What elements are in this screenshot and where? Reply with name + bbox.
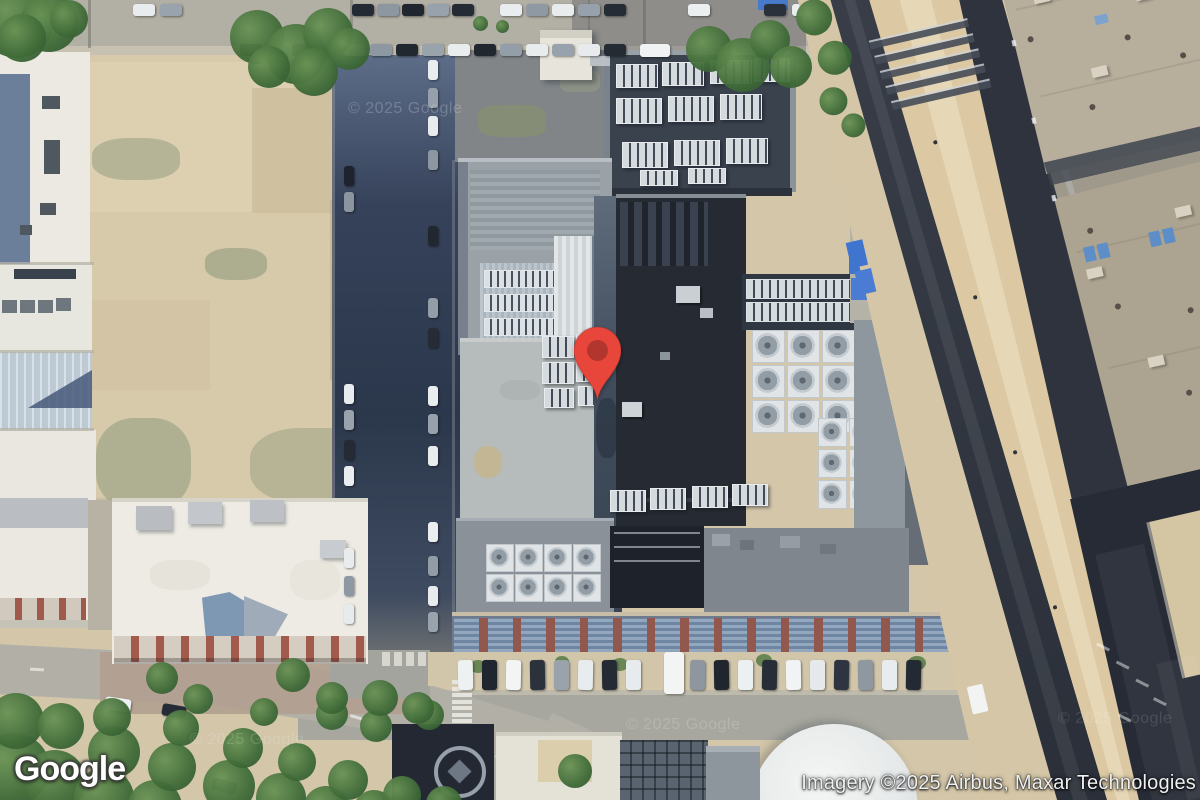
roof-edge [540,30,592,38]
tree [496,20,509,33]
fan-blade [821,421,842,442]
curb [452,160,455,640]
parked-car [482,660,497,690]
tree [163,710,199,746]
rooftop-unit [622,402,642,417]
hvac-unit [542,336,574,358]
vent-grid [484,294,562,312]
crosswalk-stripe [452,713,472,717]
fan-blade [576,547,596,567]
hvac-unit [674,140,720,166]
hvac-unit [610,490,646,512]
parked-car [714,660,730,690]
tree [250,698,278,726]
corrugated-roof [554,236,594,340]
roof-vent [20,225,32,235]
fan-unit [573,544,601,572]
parked-car [552,4,574,16]
roof-vent [38,300,53,313]
fan-unit [486,574,514,602]
fan-unit [787,365,820,398]
pin-ground-shadow [596,398,618,458]
tree [558,754,592,788]
fan-blade [825,368,850,393]
parked-car [428,446,438,466]
tree [0,14,46,62]
vent-grid [484,318,562,336]
roof-shadow [458,162,468,355]
parked-car [664,652,684,694]
moss-patch [478,105,546,137]
parked-car [428,226,438,246]
roof-stain [474,446,502,478]
parked-car [578,44,600,56]
stop-line-dash [406,652,414,666]
pin-body [574,327,621,400]
roof-edge [112,498,368,502]
fan-blade [489,547,509,567]
hvac-unit [622,142,668,168]
parked-car [452,4,474,16]
parked-car [428,612,438,632]
tree [146,662,178,694]
roof-seam [456,518,614,521]
tree [362,680,398,716]
fan-blade [547,577,567,597]
stop-line-dash [418,652,426,666]
weed-patch [205,248,267,280]
parked-car [344,440,354,460]
hvac-unit [640,170,678,186]
parked-car [500,44,522,56]
parapet [458,158,612,162]
fan-blade [790,333,815,358]
rooftop-unit [136,506,172,530]
parked-car [604,4,626,16]
parked-car [786,660,802,690]
fan-blade [576,577,596,597]
parked-car [427,4,449,16]
parked-car [526,4,548,16]
fan-blade [755,403,780,428]
louver-strip [0,598,86,620]
hvac-unit [688,168,726,184]
roof-stain [290,560,340,600]
tree [223,728,263,768]
roof-edge [706,746,760,752]
fan-unit [544,544,572,572]
parked-car [344,466,354,486]
parked-car [428,414,438,434]
parked-car [344,576,354,596]
fan-unit [486,544,514,572]
parked-car [810,660,825,690]
building-roof [704,528,909,620]
lot-patch [90,300,210,390]
stop-line-dash [382,652,390,666]
parked-car [738,660,753,690]
fan-blade [825,333,850,358]
parked-car [428,522,438,542]
parked-car [604,44,626,56]
fan-blade [821,483,842,504]
fan-blade [790,403,815,428]
parked-car [764,4,786,16]
fan-blade [755,333,780,358]
rooftop-unit [712,534,730,546]
parked-car [552,44,574,56]
fan-unit [787,400,820,433]
rooftop-unit [250,500,284,522]
tree [328,760,368,800]
tree [50,0,88,38]
hvac-unit [732,484,768,506]
parked-car [402,4,424,16]
parked-car [428,556,438,576]
roof-vent [44,140,60,174]
parked-car [458,660,474,690]
parked-car [762,660,778,690]
rooftop-unit [188,502,222,524]
tree [402,692,434,724]
fan-blade [790,368,815,393]
parked-car [882,660,897,690]
crosswalk-stripe [452,693,472,697]
parked-car [428,298,438,318]
roof-stain [150,560,210,590]
roof-vent [42,96,60,109]
crosswalk-stripe [452,700,472,704]
parked-car [474,44,496,56]
weed-patch [92,138,180,180]
google-logo[interactable]: Google [14,750,125,789]
fan-blade [821,452,842,473]
pin-dot [587,340,608,361]
parked-car [500,4,522,16]
roof-section [0,498,88,528]
parked-car [344,548,354,568]
parked-car [640,44,670,57]
roof-seam [614,532,700,534]
fan-unit [752,365,785,398]
parked-car [344,192,354,212]
parapet [616,194,746,198]
stop-line-dash [394,652,402,666]
imagery-attribution: Imagery ©2025 Airbus, Maxar Technologies [801,772,1196,795]
parked-car [428,116,438,136]
roof-vent [56,298,71,311]
roof-stain [500,380,540,400]
hvac-unit [544,388,574,408]
roof-shadow [0,74,30,266]
tree [148,743,196,791]
tree [473,16,488,31]
parked-car [858,660,874,690]
window-grid [620,740,708,800]
weed-patch [96,418,191,510]
parked-car [602,660,618,690]
tree [278,743,316,781]
fan-unit [822,330,855,363]
roof-edge [0,620,88,628]
parked-car [422,44,444,56]
parked-car [578,4,600,16]
louver-bank [620,202,708,266]
parked-car [688,4,710,16]
building-roof [0,430,96,500]
rooftop-unit [700,308,713,318]
vent-grid [746,279,852,299]
roof-seam [614,560,700,562]
parked-car [133,4,155,16]
parked-car [428,150,438,170]
fan-blade [755,368,780,393]
crosswalk-stripe [452,706,472,710]
roof-shadow [114,658,366,664]
roof-edge [496,732,622,736]
fan-unit [822,365,855,398]
vent-grid [484,270,562,288]
building-roof [706,746,760,800]
fan-unit [515,574,543,602]
map-pin-marker[interactable] [574,327,621,400]
roof-vent [2,300,17,313]
skylight-slot [14,269,76,279]
parked-car [396,44,418,56]
parked-car [530,660,546,690]
parked-car [626,660,641,690]
hvac-unit [616,98,662,124]
roof-seam [0,262,94,265]
parked-car [428,60,438,80]
parked-car [428,88,438,108]
fan-unit [515,544,543,572]
fan-unit [787,330,820,363]
fan-unit [752,330,785,363]
rooftop-unit [660,352,670,360]
fan-blade [489,577,509,597]
parked-car [352,4,374,16]
parked-car [428,586,438,606]
rooftop-unit [676,286,700,303]
rooftop-unit [820,544,836,554]
tree [248,46,290,88]
hvac-unit [720,94,762,120]
roof-seam [614,546,700,548]
pole-shadow [88,0,91,48]
parked-car [690,660,706,690]
parked-car [448,44,470,56]
parked-car [428,386,438,406]
roof-seam [0,428,94,431]
rooftop-unit [320,540,346,558]
parked-car [344,384,354,404]
fan-unit [818,418,847,447]
roof-vent [40,203,56,215]
fan-unit [818,480,847,509]
building-roof [610,526,704,608]
parked-car [370,44,392,56]
hvac-unit [542,362,574,384]
parked-car [344,410,354,430]
rooftop-unit [780,536,800,548]
fan-blade [547,547,567,567]
hvac-unit [692,486,728,508]
map-canvas[interactable]: © 2025 Google © 2025 Google © 2025 Googl… [0,0,1200,800]
parked-car [578,660,594,690]
fan-unit [818,449,847,478]
parked-car [834,660,850,690]
tree [316,682,348,714]
alley [88,500,112,630]
hvac-unit [668,96,714,122]
tree [38,703,84,749]
fan-unit [573,574,601,602]
parked-car [428,328,438,348]
parked-car [906,660,922,690]
fan-blade [518,577,538,597]
tree [183,684,213,714]
tree [93,698,131,736]
crosswalk-stripe [452,719,472,723]
rooftop-unit [740,540,754,550]
walkway [590,56,610,66]
vent-grid [746,302,852,322]
parked-car [554,660,569,690]
hvac-unit [726,138,768,164]
parked-car [526,44,548,56]
roof-seam [0,350,94,353]
fan-unit [752,400,785,433]
parked-car [344,166,354,186]
parked-car [344,604,354,624]
tree [770,46,812,88]
fan-blade [518,547,538,567]
tree [328,28,370,70]
parked-car [160,4,182,16]
parked-car [506,660,522,690]
hvac-unit [616,64,658,88]
roof-vent [20,300,35,313]
fan-unit [544,574,572,602]
hvac-unit [650,488,686,510]
tree [276,658,310,692]
parked-car [377,4,399,16]
